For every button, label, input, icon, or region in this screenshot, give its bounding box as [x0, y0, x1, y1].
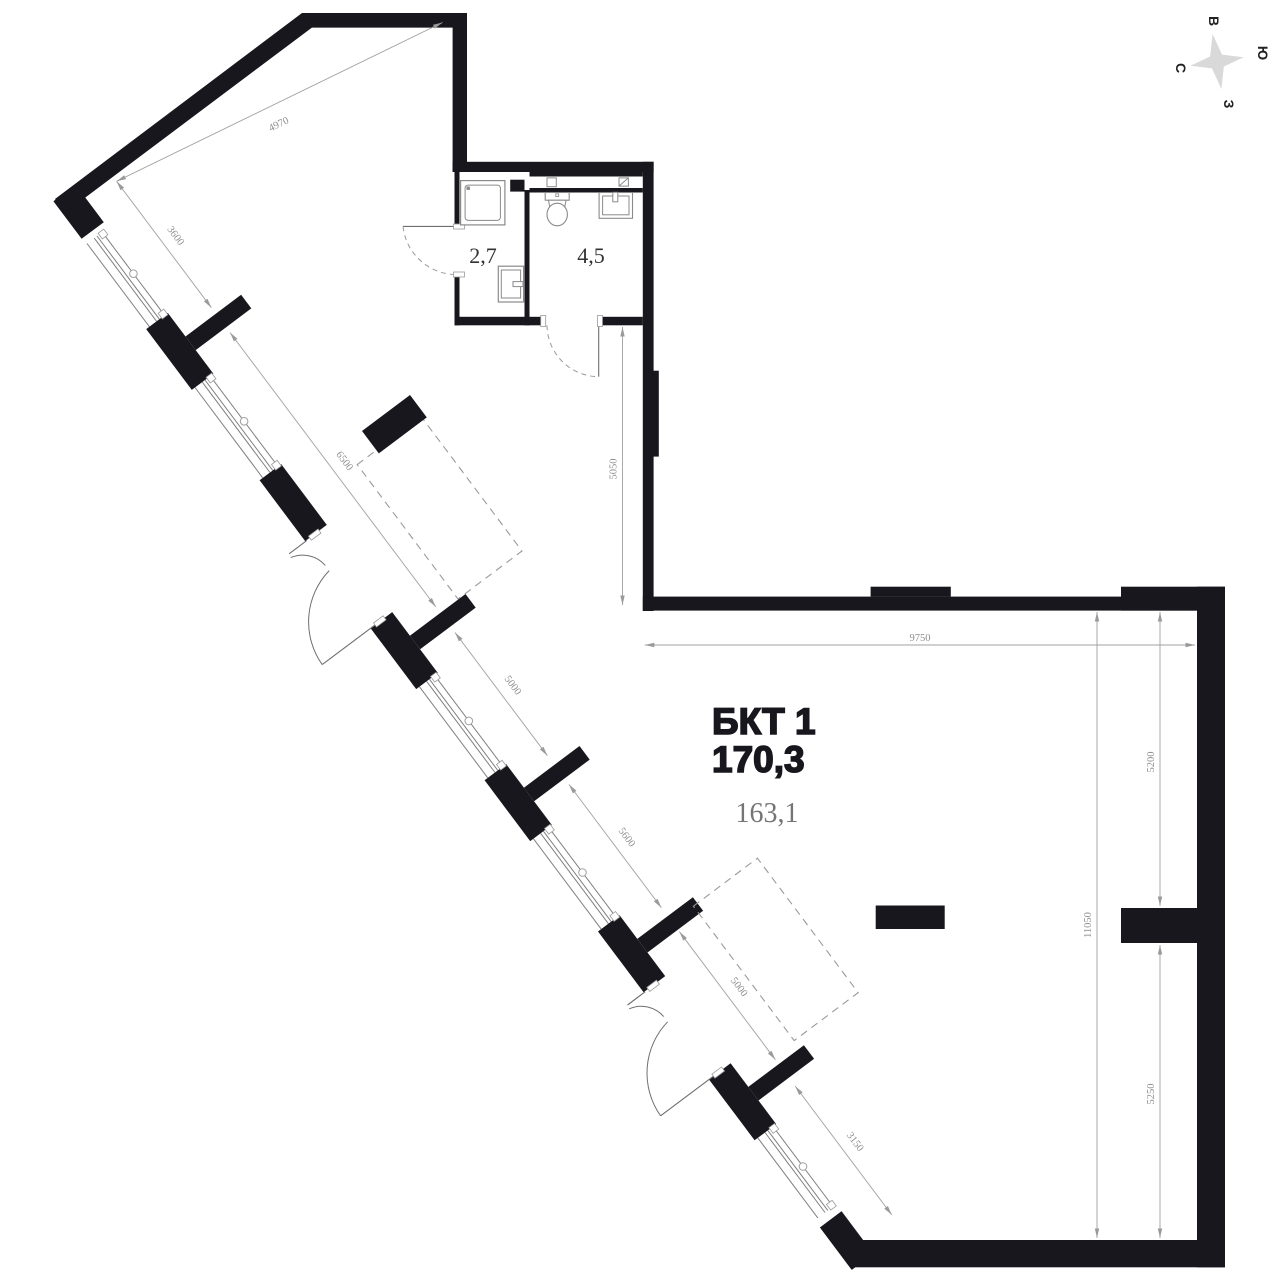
svg-text:9750: 9750: [910, 633, 931, 644]
svg-text:163,1: 163,1: [736, 798, 799, 829]
svg-text:С: С: [1173, 63, 1189, 73]
svg-text:В: В: [1206, 16, 1222, 26]
svg-text:5050: 5050: [609, 459, 620, 480]
svg-text:4,5: 4,5: [577, 243, 605, 268]
svg-text:З: З: [1221, 100, 1237, 109]
svg-text:БКТ 1: БКТ 1: [712, 701, 816, 742]
svg-text:5250: 5250: [1146, 1084, 1157, 1105]
svg-text:Ю: Ю: [1255, 46, 1271, 60]
svg-text:5200: 5200: [1146, 752, 1157, 773]
svg-text:170,3: 170,3: [712, 739, 805, 780]
svg-text:2,7: 2,7: [469, 243, 497, 268]
svg-text:11050: 11050: [1083, 912, 1094, 938]
